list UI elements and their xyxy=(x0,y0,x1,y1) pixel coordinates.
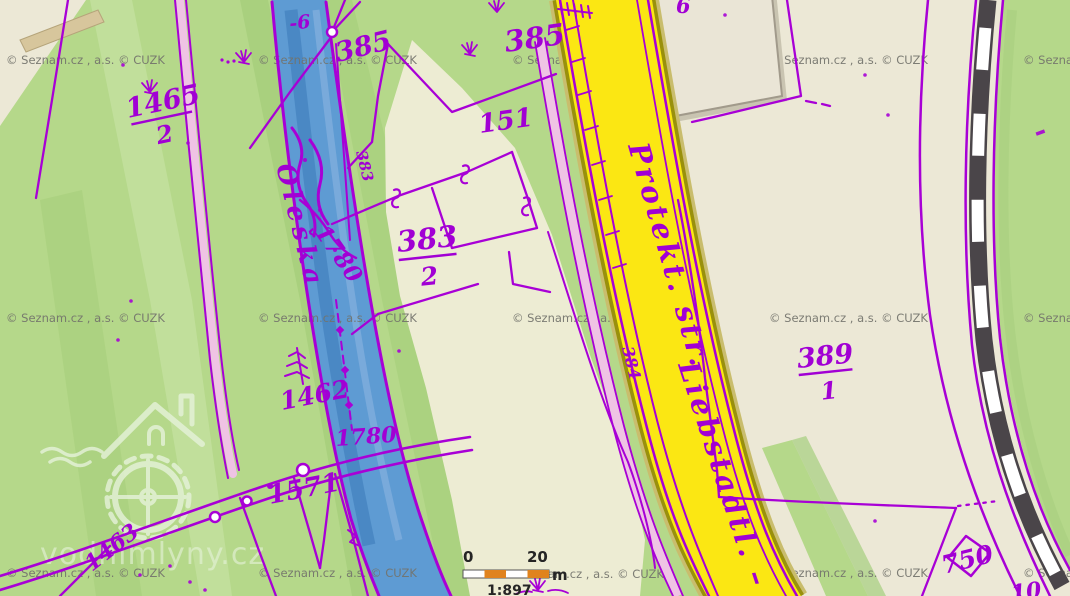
parcel-label-10: 10 xyxy=(1009,577,1044,596)
parcel-label-1780: 1780 xyxy=(335,422,399,452)
parcel-label-6: -6 xyxy=(288,11,311,35)
scalebar-unit-label: m xyxy=(552,566,568,584)
svg-text:1: 1 xyxy=(819,375,839,406)
parcel-label-6b: 6 xyxy=(676,0,691,18)
scalebar-max-label: 20 xyxy=(527,548,548,566)
attribution-text: © Seznam.cz , a.s. © CUZK xyxy=(769,311,928,325)
map-canvas[interactable]: vodnimlyny.cz © Seznam.cz , a.s. © CUZK … xyxy=(0,0,1070,596)
attribution-text: © Seznam.cz , a.s. © CUZK xyxy=(6,566,165,580)
attribution-text: © Seznam.cz , a.s. © CUZK xyxy=(1023,311,1070,325)
attribution-text: © Seznam.cz , a.s. © CUZK xyxy=(1023,53,1070,67)
scalebar-min-label: 0 xyxy=(463,548,473,566)
scalebar-ratio-label: 1:897 xyxy=(487,583,532,596)
attribution-text: © Seznam.cz , a.s. © CUZK xyxy=(769,53,928,67)
svg-text:383: 383 xyxy=(395,219,459,259)
attribution-text: © Seznam.cz , a.s. © CUZK xyxy=(258,566,417,580)
attribution-text: © Seznam.cz , a.s. © CUZK xyxy=(6,311,165,325)
attribution-text: © Seznam.cz , a.s. © CUZK xyxy=(6,53,165,67)
svg-text:2: 2 xyxy=(418,261,439,292)
map-viewport[interactable]: vodnimlyny.cz © Seznam.cz , a.s. © CUZK … xyxy=(0,0,1070,596)
